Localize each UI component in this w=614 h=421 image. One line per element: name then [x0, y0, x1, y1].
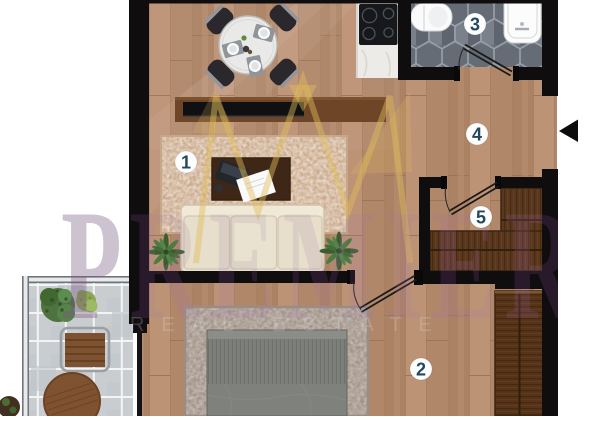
svg-text:4: 4 — [472, 125, 482, 145]
svg-text:1: 1 — [181, 153, 191, 173]
svg-text:REAL ESTATE: REAL ESTATE — [130, 314, 449, 336]
svg-text:3: 3 — [470, 15, 480, 35]
svg-text:5: 5 — [476, 208, 486, 228]
svg-text:2: 2 — [416, 360, 426, 380]
